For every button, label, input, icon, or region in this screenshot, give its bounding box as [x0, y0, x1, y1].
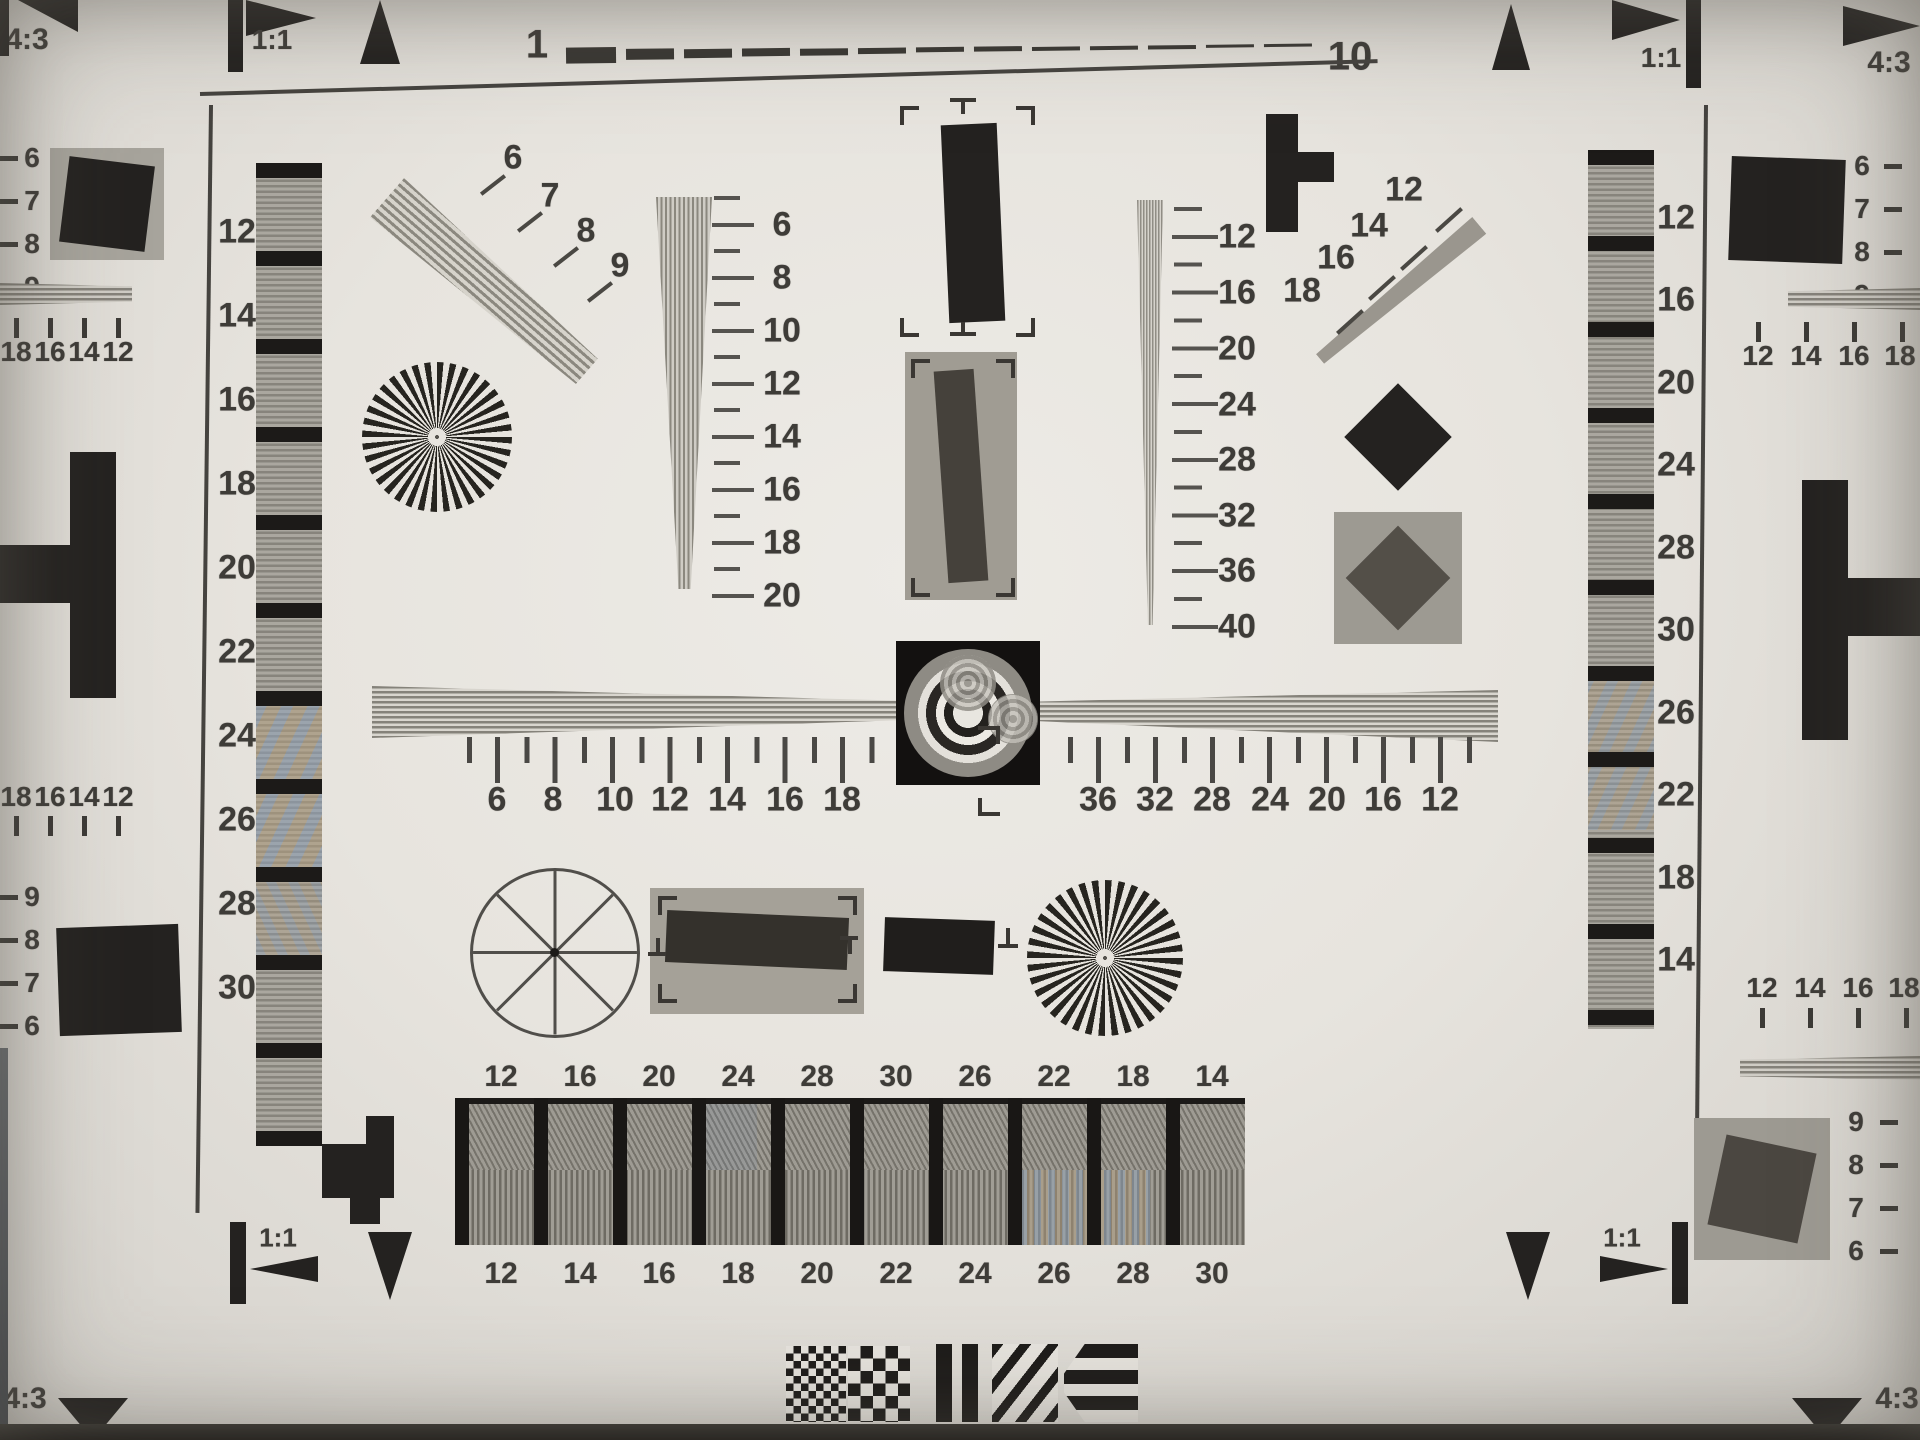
margin-tick-label: 7 [24, 185, 40, 217]
gray-rect-tilted-bar [650, 888, 864, 1014]
coarse-checkerboard [848, 1346, 910, 1422]
h-scale-label: 16 [1364, 781, 1402, 820]
scale-label: 6 [773, 206, 792, 245]
segment-separators [1588, 150, 1654, 1029]
bars-bottom-label: 24 [958, 1257, 991, 1291]
margin-tick-label: 8 [1854, 236, 1870, 268]
vertical-wedge-bar-right [1588, 150, 1654, 1029]
black-square [56, 924, 182, 1036]
bars-bottom-label: 20 [800, 1257, 833, 1291]
spoke-circle [470, 868, 640, 1038]
iso12233-test-chart-photo: 4:3 1:1 1 10 1:1 4:3 6 7 8 9 18 16 14 [0, 0, 1920, 1440]
wedge-label: 14 [1657, 941, 1695, 980]
fan-tick [587, 281, 613, 303]
aspect-label-11-top-left: 1:1 [252, 24, 292, 56]
pole-mark [230, 1222, 246, 1304]
wedge-label: 30 [218, 969, 256, 1008]
scale-label: 10 [763, 312, 801, 351]
margin-tick-label: 7 [1854, 193, 1870, 225]
h-scale-label: 36 [1079, 781, 1117, 820]
wedge-label: 16 [218, 381, 256, 420]
aspect-label-43-top-left: 4:3 [5, 23, 48, 57]
siemens-starburst [362, 362, 512, 512]
vertical-bar-icon [936, 1344, 952, 1422]
margin-scale-label: 18 [0, 781, 31, 813]
corner-bracket [978, 812, 1000, 816]
t-mark [961, 322, 965, 332]
tick-row [14, 318, 126, 338]
aspect-label-11-bottom-left: 1:1 [259, 1223, 297, 1254]
margin-tick-label: 8 [1848, 1149, 1864, 1181]
h-scale-label: 28 [1193, 781, 1231, 820]
h-scale-label: 12 [651, 781, 689, 820]
black-diamond [1344, 383, 1451, 490]
wedge-label: 22 [218, 633, 256, 672]
tick-row [1756, 322, 1916, 342]
bars-bottom-label: 14 [563, 1257, 596, 1291]
corner-bracket [1016, 318, 1035, 337]
tick-dashes [0, 895, 18, 1031]
bars-top-label: 14 [1195, 1060, 1228, 1094]
bars-top-label: 22 [1037, 1060, 1070, 1094]
tick-dashes [1880, 1120, 1898, 1256]
up-triangle [1492, 4, 1530, 70]
corner-bracket [996, 726, 1000, 744]
key-mark [350, 1198, 380, 1224]
fan-tick [517, 211, 543, 233]
bars-bottom-label: 22 [879, 1257, 912, 1291]
black-vertical-bar [941, 123, 1006, 323]
wedge-label: 28 [218, 885, 256, 924]
aspect-label-43-bottom-left: 4:3 [3, 1382, 46, 1416]
margin-scale-label: 18 [0, 336, 31, 368]
wedge-label: 16 [1657, 281, 1695, 320]
right-frame-line [1694, 105, 1707, 1213]
h-scale-label: 12 [1421, 781, 1459, 820]
bars-top-label: 26 [958, 1060, 991, 1094]
horizontal-bars-icon [1064, 1344, 1138, 1422]
margin-scale-label: 12 [1746, 972, 1777, 1004]
margin-scale-label: 14 [68, 781, 99, 813]
t-mark [848, 938, 852, 954]
aspect-label-11-top-right: 1:1 [1641, 42, 1681, 74]
ruler-end-label: 10 [1328, 35, 1373, 80]
bars-bottom-label: 18 [721, 1257, 754, 1291]
t-mark [656, 938, 660, 954]
left-frame-line [195, 105, 212, 1213]
h-scale-label: 32 [1136, 781, 1174, 820]
vertical-wedge-bar-left [256, 163, 322, 1146]
rotated-black-square [59, 156, 155, 252]
fine-checkerboard [786, 1346, 846, 1422]
corner-bracket [658, 896, 677, 915]
tick-dashes [0, 156, 18, 292]
wedge-label: 20 [1657, 364, 1695, 403]
wedge-label: 18 [1657, 859, 1695, 898]
horizontal-wedge-left [372, 686, 896, 738]
ruler-start-label: 1 [526, 23, 548, 68]
margin-scale-label: 16 [1838, 340, 1869, 372]
corner-bracket [838, 984, 857, 1003]
key-mark [1266, 114, 1298, 232]
aspect-label-11-bottom-right: 1:1 [1603, 1223, 1641, 1254]
margin-tick-label: 6 [24, 1010, 40, 1042]
wedge-label: 12 [218, 213, 256, 252]
corner-bracket [1016, 106, 1035, 125]
bars-top-label: 16 [563, 1060, 596, 1094]
h-scale-label: 20 [1308, 781, 1346, 820]
corner-bracket [900, 318, 919, 337]
t-mark [950, 332, 976, 336]
t-mark [961, 102, 965, 114]
aspect-label-43-bottom-right: 4:3 [1875, 1382, 1918, 1416]
margin-scale-label: 16 [34, 781, 65, 813]
bars-bottom-label: 30 [1195, 1257, 1228, 1291]
edge-mark [0, 0, 9, 56]
gray-patch-diamond [1334, 512, 1462, 644]
black-square [1728, 156, 1846, 264]
bars-top-label: 30 [879, 1060, 912, 1094]
corner-bracket [900, 106, 919, 125]
scale-label: 28 [1218, 441, 1256, 480]
scale-label: 36 [1218, 552, 1256, 591]
fan-label: 6 [504, 139, 523, 178]
segment-separators [455, 1098, 1245, 1245]
tilted-dark-bar [934, 369, 989, 583]
h-scale-label: 8 [544, 781, 563, 820]
tilted-dark-bar [665, 910, 849, 970]
fan-label: 9 [611, 247, 630, 286]
margin-tick-label: 8 [24, 924, 40, 956]
fan-label: 7 [541, 177, 560, 216]
scale-label: 16 [1218, 274, 1256, 313]
pole-mark [1686, 0, 1701, 88]
wedge-label: 30 [1657, 611, 1695, 650]
diagonal-stripes-icon [992, 1344, 1058, 1422]
corner-bracket [996, 359, 1015, 378]
fan-label: 12 [1385, 171, 1423, 210]
margin-scale-label: 18 [1884, 340, 1915, 372]
scale-label: 20 [763, 577, 801, 616]
margin-tick-label: 9 [24, 881, 40, 913]
margin-scale-label: 18 [1888, 972, 1919, 1004]
scale-label: 24 [1218, 386, 1256, 425]
fan-label: 16 [1317, 239, 1355, 278]
photo-edge-sliver [0, 1048, 8, 1440]
wedge-label: 20 [218, 549, 256, 588]
scale-label: 12 [1218, 218, 1256, 257]
scale-label: 18 [763, 524, 801, 563]
margin-tick-label: 6 [24, 142, 40, 174]
gray-patch-square [50, 148, 164, 260]
scale-label: 16 [763, 471, 801, 510]
flag-triangle [250, 1256, 318, 1282]
scale-label: 8 [773, 259, 792, 298]
h-scale-label: 18 [823, 781, 861, 820]
scale-label: 20 [1218, 330, 1256, 369]
bars-bottom-label: 12 [484, 1257, 517, 1291]
wedge-label: 26 [218, 801, 256, 840]
bars-bottom-label: 16 [642, 1257, 675, 1291]
margin-scale-label: 14 [68, 336, 99, 368]
t-mark [998, 944, 1018, 948]
h-scale-short-ticks [1068, 737, 1502, 763]
scale-label: 12 [763, 365, 801, 404]
horizontal-wedge-strip [1788, 288, 1920, 310]
h-scale-short-ticks [467, 737, 891, 763]
h-scale-label: 14 [708, 781, 746, 820]
fan-tick [553, 246, 579, 268]
wedge-label: 14 [218, 297, 256, 336]
corner-bracket [911, 359, 930, 378]
key-mark [366, 1116, 394, 1146]
corner-bracket [658, 984, 677, 1003]
fan-label: 14 [1350, 207, 1388, 246]
margin-tick-label: 7 [1848, 1192, 1864, 1224]
margin-scale-label: 14 [1790, 340, 1821, 372]
gray-rect-tilted-bar [905, 352, 1017, 600]
fan-tick [480, 174, 506, 196]
aspect-label-43-top-right: 4:3 [1867, 46, 1910, 80]
photo-bottom-band [0, 1424, 1920, 1440]
up-triangle [360, 0, 400, 64]
margin-tick-label: 6 [1854, 150, 1870, 182]
wedge-label: 12 [1657, 199, 1695, 238]
moire-ring-small [940, 655, 996, 711]
key-mark [1298, 152, 1334, 182]
margin-scale-label: 14 [1794, 972, 1825, 1004]
fan-label: 18 [1283, 272, 1321, 311]
wedge-label: 26 [1657, 694, 1695, 733]
bars-bottom-label: 26 [1037, 1257, 1070, 1291]
scale-label: 14 [763, 418, 801, 457]
dark-diamond [1346, 526, 1451, 631]
corner-bracket [996, 578, 1015, 597]
bars-top-label: 12 [484, 1060, 517, 1094]
tick-row [1760, 1008, 1920, 1028]
t-bar-stem [1802, 480, 1848, 740]
wedge-label: 18 [218, 465, 256, 504]
t-bar-arm [0, 545, 72, 603]
thin-vertical-wedge [1137, 200, 1163, 625]
margin-tick-label: 7 [24, 967, 40, 999]
corner-bracket [911, 578, 930, 597]
scale-label: 40 [1218, 608, 1256, 647]
segment-separators [256, 163, 322, 1146]
down-triangle [368, 1232, 412, 1300]
bars-top-label: 24 [721, 1060, 754, 1094]
pole-mark [1672, 1222, 1688, 1304]
rotated-dark-square [1707, 1134, 1816, 1243]
wedge-label: 22 [1657, 776, 1695, 815]
margin-scale-label: 16 [34, 336, 65, 368]
h-scale-label: 10 [596, 781, 634, 820]
scale-label: 32 [1218, 497, 1256, 536]
h-scale-label: 16 [766, 781, 804, 820]
bars-bottom-label: 28 [1116, 1257, 1149, 1291]
t-bar-arm [1846, 578, 1920, 636]
bars-top-label: 28 [800, 1060, 833, 1094]
horizontal-wedge-strip [0, 283, 132, 305]
margin-tick-label: 8 [24, 228, 40, 260]
vertical-bar-icon [962, 1344, 978, 1422]
flag-triangle [1612, 0, 1680, 40]
siemens-starburst [1027, 880, 1183, 1036]
flag-triangle [1843, 6, 1920, 46]
vertical-taper-wedge [656, 197, 712, 589]
corner-bracket [838, 896, 857, 915]
margin-scale-label: 12 [102, 781, 133, 813]
margin-tick-label: 9 [1848, 1106, 1864, 1138]
diagonal-fan-sweep [370, 178, 604, 391]
key-mark [322, 1144, 394, 1198]
pole-mark [228, 0, 243, 72]
focus-target [896, 641, 1040, 785]
scale-short-ticks [1174, 207, 1202, 607]
resolution-bars-block [455, 1098, 1245, 1245]
bars-top-label: 20 [642, 1060, 675, 1094]
tick-row [14, 816, 126, 836]
tick-dashes [1884, 164, 1902, 300]
t-bar-stem [70, 452, 116, 698]
margin-scale-label: 12 [102, 336, 133, 368]
margin-tick-label: 6 [1848, 1235, 1864, 1267]
scale-short-ticks [714, 196, 740, 580]
wedge-label: 24 [218, 717, 256, 756]
h-scale-label: 6 [488, 781, 507, 820]
spoke-hub [550, 948, 559, 957]
bars-top-label: 18 [1116, 1060, 1149, 1094]
fan-label: 8 [577, 212, 596, 251]
flag-triangle [1600, 1256, 1668, 1282]
horizontal-wedge-strip [1740, 1056, 1920, 1080]
gray-patch-square [1694, 1118, 1830, 1260]
h-scale-label: 24 [1251, 781, 1289, 820]
down-triangle [1506, 1232, 1550, 1300]
horizontal-wedge-right [1040, 690, 1498, 742]
margin-scale-label: 12 [1742, 340, 1773, 372]
black-bar [883, 917, 995, 975]
margin-scale-label: 16 [1842, 972, 1873, 1004]
wedge-label: 28 [1657, 529, 1695, 568]
wedge-label: 24 [1657, 446, 1695, 485]
